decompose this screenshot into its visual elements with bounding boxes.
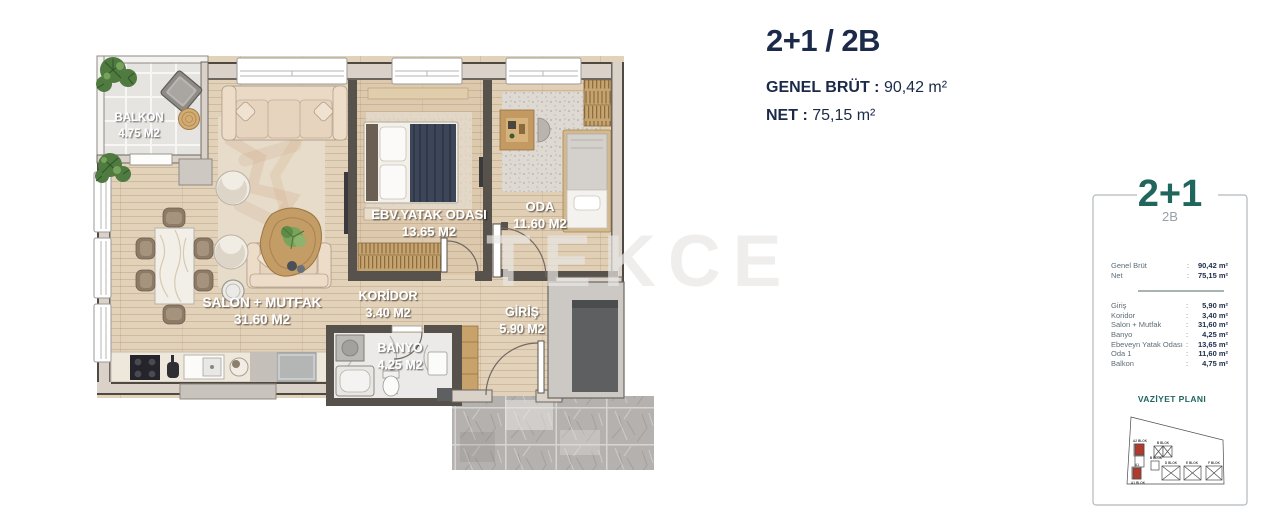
svg-text:90,42 m²: 90,42 m² <box>1198 261 1229 270</box>
svg-text:31.60 M2: 31.60 M2 <box>234 312 290 327</box>
svg-text:E BLOK: E BLOK <box>1186 461 1199 465</box>
svg-text:Oda 1: Oda 1 <box>1111 349 1131 358</box>
svg-text:5,90 m²: 5,90 m² <box>1202 301 1228 310</box>
svg-text::: : <box>1186 330 1188 339</box>
svg-text:4.75 M2: 4.75 M2 <box>118 128 160 140</box>
svg-text:4,25 m²: 4,25 m² <box>1202 330 1228 339</box>
svg-text:13,65 m²: 13,65 m² <box>1198 340 1229 349</box>
svg-text:2+1 / 2B: 2+1 / 2B <box>766 23 880 58</box>
svg-text::: : <box>1186 340 1188 349</box>
svg-text:ODA: ODA <box>526 199 556 214</box>
svg-text:4,75 m²: 4,75 m² <box>1202 359 1228 368</box>
svg-text:TEKCE: TEKCE <box>486 221 793 302</box>
svg-text:BANYO: BANYO <box>377 341 422 355</box>
svg-text:Koridor: Koridor <box>1111 311 1136 320</box>
svg-text:B BLOK: B BLOK <box>1150 456 1163 460</box>
svg-text:Salon + Mutfak: Salon + Mutfak <box>1111 320 1161 329</box>
svg-text::: : <box>1186 359 1188 368</box>
svg-text:SALON + MUTFAK: SALON + MUTFAK <box>203 295 322 310</box>
svg-text:3,40 m²: 3,40 m² <box>1202 311 1228 320</box>
svg-text:VAZİYET PLANI: VAZİYET PLANI <box>1138 394 1206 404</box>
svg-text::: : <box>1186 349 1188 358</box>
svg-text:GİRİŞ: GİRİŞ <box>505 304 539 319</box>
svg-text::: : <box>1187 261 1189 270</box>
svg-text:BALKON: BALKON <box>114 112 163 124</box>
svg-text:75,15 m²: 75,15 m² <box>1198 271 1229 280</box>
svg-text:KORİDOR: KORİDOR <box>358 288 417 303</box>
svg-text:11.60 M2: 11.60 M2 <box>513 216 567 231</box>
svg-text:4.25 M2: 4.25 M2 <box>377 358 422 372</box>
svg-text:5.90 M2: 5.90 M2 <box>499 322 544 336</box>
svg-text:Giriş: Giriş <box>1111 301 1127 310</box>
svg-text:D BLOK: D BLOK <box>1165 461 1178 465</box>
svg-text:NET : 75,15 m²: NET : 75,15 m² <box>766 107 876 124</box>
svg-text:2B: 2B <box>1162 209 1178 224</box>
svg-text:B BLOK: B BLOK <box>1157 441 1170 445</box>
svg-text:31,60 m²: 31,60 m² <box>1198 320 1229 329</box>
svg-text:F BLOK: F BLOK <box>1208 461 1221 465</box>
svg-text:Genel Brüt: Genel Brüt <box>1111 261 1148 270</box>
svg-text:Balkon: Balkon <box>1111 359 1134 368</box>
svg-text:A2 BLOK: A2 BLOK <box>1133 439 1148 443</box>
svg-text:Net: Net <box>1111 271 1124 280</box>
svg-text:13.65 M2: 13.65 M2 <box>402 224 456 239</box>
svg-text:GENEL BRÜT : 90,42 m²: GENEL BRÜT : 90,42 m² <box>766 77 948 96</box>
svg-text:A1: A1 <box>1135 463 1139 467</box>
svg-text::: : <box>1186 311 1188 320</box>
svg-text:A1 BLOK: A1 BLOK <box>1131 481 1146 485</box>
svg-text:11,60 m²: 11,60 m² <box>1198 349 1228 358</box>
svg-text::: : <box>1187 271 1189 280</box>
svg-text:Banyo: Banyo <box>1111 330 1132 339</box>
svg-text::: : <box>1186 320 1188 329</box>
svg-text:EBV.YATAK ODASI: EBV.YATAK ODASI <box>371 207 487 222</box>
svg-text:3.40 M2: 3.40 M2 <box>365 306 410 320</box>
svg-text:Ebeveyn Yatak Odası: Ebeveyn Yatak Odası <box>1111 340 1183 349</box>
svg-text::: : <box>1186 301 1188 310</box>
